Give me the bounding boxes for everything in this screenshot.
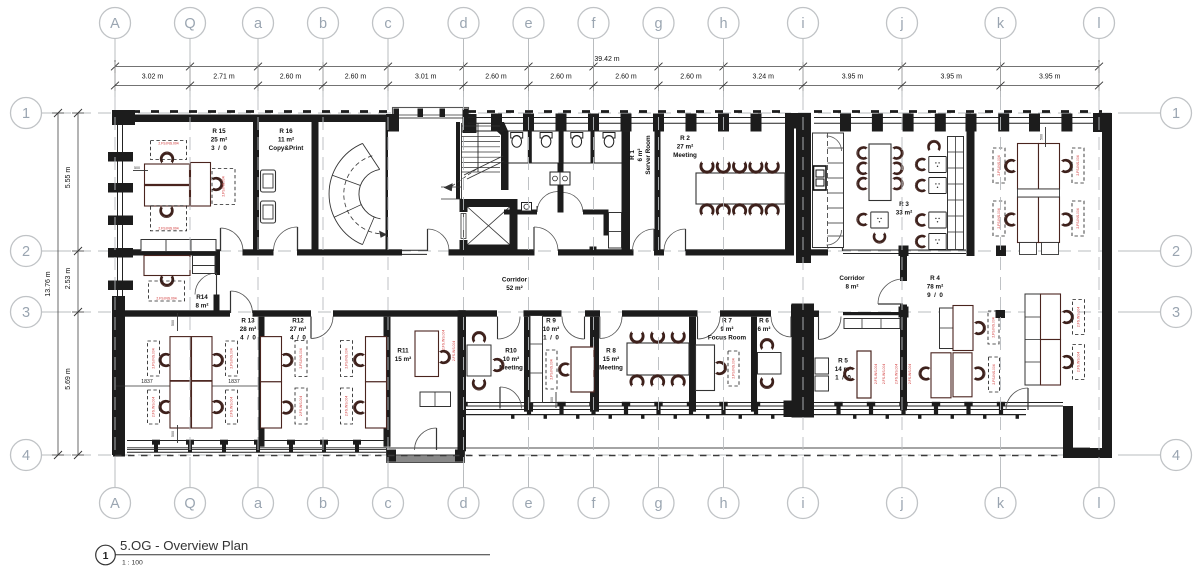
svg-text:R 2: R 2 — [680, 135, 690, 142]
svg-text:2.FS.INS.004: 2.FS.INS.004 — [442, 330, 446, 350]
svg-text:k: k — [997, 16, 1005, 32]
svg-text:R 9: R 9 — [546, 318, 556, 325]
svg-text:R 1: R 1 — [629, 150, 636, 160]
svg-text:Corridor: Corridor — [839, 275, 865, 282]
svg-text:27 m²: 27 m² — [290, 326, 306, 333]
svg-text:g: g — [654, 496, 662, 512]
svg-text:i: i — [801, 496, 804, 512]
svg-text:2.FS.INS.004: 2.FS.INS.004 — [158, 226, 178, 230]
svg-text:2.FS.INS.004: 2.FS.INS.004 — [1077, 352, 1081, 372]
svg-text:3.95 m: 3.95 m — [941, 74, 963, 81]
svg-text:2.FS.INS.004: 2.FS.INS.004 — [345, 348, 349, 368]
svg-text:2.FS.INS.004: 2.FS.INS.004 — [158, 142, 178, 146]
svg-text:R11: R11 — [397, 348, 409, 355]
svg-text:e: e — [524, 496, 532, 512]
svg-text:13.76 m: 13.76 m — [45, 271, 52, 296]
svg-text:500: 500 — [171, 320, 175, 326]
svg-text:6 m²: 6 m² — [758, 326, 771, 333]
svg-text:2.FS.INS.004: 2.FS.INS.004 — [895, 364, 899, 384]
svg-text:2.FS.INS.004: 2.FS.INS.004 — [222, 176, 226, 196]
svg-text:5.OG - Overview Plan: 5.OG - Overview Plan — [120, 538, 248, 553]
svg-text:6 m²: 6 m² — [637, 149, 644, 162]
svg-text:R14: R14 — [196, 294, 208, 301]
svg-text:2.60 m: 2.60 m — [280, 74, 302, 81]
svg-text:1 / 0: 1 / 0 — [543, 335, 559, 342]
svg-text:2.FS.INS.004: 2.FS.INS.004 — [1076, 208, 1080, 228]
svg-text:R 15: R 15 — [212, 128, 226, 135]
svg-text:3.24 m: 3.24 m — [753, 74, 775, 81]
svg-text:2.53 m: 2.53 m — [65, 268, 72, 290]
svg-text:2: 2 — [22, 244, 30, 260]
svg-text:3.01 m: 3.01 m — [415, 74, 437, 81]
svg-text:j: j — [899, 16, 903, 32]
svg-text:1: 1 — [22, 106, 30, 122]
svg-text:2.FS.INS.004: 2.FS.INS.004 — [299, 396, 303, 416]
svg-text:27 m²: 27 m² — [677, 144, 693, 151]
svg-text:2.FS.INS.004: 2.FS.INS.004 — [156, 297, 176, 301]
svg-text:R 3: R 3 — [899, 201, 909, 208]
svg-text:2.60 m: 2.60 m — [485, 74, 507, 81]
svg-text:j: j — [899, 496, 903, 512]
svg-text:8 m²: 8 m² — [846, 284, 859, 291]
svg-text:78 m²: 78 m² — [927, 284, 943, 291]
svg-text:g: g — [654, 16, 662, 32]
svg-text:2.FS.INS.004: 2.FS.INS.004 — [732, 358, 736, 378]
svg-text:2.60 m: 2.60 m — [345, 74, 367, 81]
svg-text:3: 3 — [22, 305, 30, 321]
svg-text:1837: 1837 — [228, 379, 240, 385]
svg-text:Meeting: Meeting — [599, 365, 623, 372]
svg-text:2.60 m: 2.60 m — [615, 74, 637, 81]
svg-text:2.FS.INS.004: 2.FS.INS.004 — [452, 341, 456, 361]
svg-text:4: 4 — [22, 448, 30, 464]
svg-text:3: 3 — [1172, 305, 1180, 321]
svg-text:3.02 m: 3.02 m — [142, 74, 164, 81]
svg-text:R 16: R 16 — [279, 128, 293, 135]
svg-text:h: h — [719, 16, 727, 32]
svg-text:10 m²: 10 m² — [543, 326, 559, 333]
svg-text:2.FS.INS.004: 2.FS.INS.004 — [882, 364, 886, 384]
svg-text:R 4: R 4 — [930, 275, 940, 282]
svg-text:d: d — [459, 16, 467, 32]
svg-text:a: a — [254, 16, 263, 32]
svg-text:2.FS.INS.004: 2.FS.INS.004 — [550, 359, 554, 379]
svg-text:Q: Q — [184, 496, 195, 512]
svg-text:9 / 0: 9 / 0 — [927, 292, 943, 299]
svg-text:2.FS.INS.004: 2.FS.INS.004 — [992, 364, 996, 384]
svg-text:39.42 m: 39.42 m — [594, 56, 619, 63]
svg-text:28 m²: 28 m² — [240, 326, 256, 333]
svg-text:Server Room: Server Room — [645, 135, 652, 175]
svg-text:i: i — [801, 16, 804, 32]
svg-text:2.FS.INS.004: 2.FS.INS.004 — [299, 348, 303, 368]
svg-text:500: 500 — [171, 431, 175, 437]
svg-text:2.FS.INS.004: 2.FS.INS.004 — [230, 397, 234, 417]
svg-text:2.FS.INS.004: 2.FS.INS.004 — [874, 364, 878, 384]
svg-text:A: A — [110, 16, 120, 32]
svg-text:l: l — [1097, 16, 1100, 32]
svg-text:500: 500 — [1040, 134, 1044, 140]
svg-text:3.95 m: 3.95 m — [842, 74, 864, 81]
svg-text:1: 1 — [103, 550, 109, 562]
svg-text:500: 500 — [550, 397, 554, 403]
svg-text:8 m²: 8 m² — [196, 303, 209, 310]
svg-text:2.FS.INS.004: 2.FS.INS.004 — [152, 397, 156, 417]
svg-text:b: b — [319, 16, 327, 32]
svg-text:3.95 m: 3.95 m — [1039, 74, 1061, 81]
svg-text:52 m²: 52 m² — [506, 285, 522, 292]
svg-text:2.FS.INS.004: 2.FS.INS.004 — [345, 396, 349, 416]
svg-text:A: A — [110, 496, 120, 512]
svg-text:1 : 100: 1 : 100 — [122, 560, 143, 567]
svg-text:2.FS.INS.004: 2.FS.INS.004 — [1076, 155, 1080, 175]
svg-text:10 m²: 10 m² — [503, 356, 519, 363]
svg-text:Focus Room: Focus Room — [708, 335, 747, 342]
svg-text:2.60 m: 2.60 m — [680, 74, 702, 81]
svg-text:k: k — [997, 496, 1005, 512]
svg-text:33 m²: 33 m² — [896, 210, 912, 217]
svg-text:9 m²: 9 m² — [721, 326, 734, 333]
svg-text:2.FS.INS.004: 2.FS.INS.004 — [1077, 307, 1081, 327]
svg-text:R 8: R 8 — [606, 348, 616, 355]
svg-text:2.FS.INS.004: 2.FS.INS.004 — [152, 348, 156, 368]
svg-text:5.69 m: 5.69 m — [65, 368, 72, 390]
svg-text:3 / 0: 3 / 0 — [211, 145, 227, 152]
svg-text:Corridor: Corridor — [502, 276, 528, 283]
svg-text:2.FS.INS.004: 2.FS.INS.004 — [230, 348, 234, 368]
svg-text:R 5: R 5 — [838, 358, 848, 365]
svg-text:a: a — [254, 496, 263, 512]
svg-text:500: 500 — [134, 166, 140, 170]
svg-text:2.FS.INS.004: 2.FS.INS.004 — [992, 317, 996, 337]
svg-text:R 13: R 13 — [241, 318, 255, 325]
svg-text:Meeting: Meeting — [673, 152, 697, 159]
svg-text:R10: R10 — [505, 348, 517, 355]
svg-text:15 m²: 15 m² — [603, 356, 619, 363]
svg-text:11 m²: 11 m² — [278, 137, 294, 144]
svg-text:2.FS.INS.004: 2.FS.INS.004 — [908, 364, 912, 384]
svg-text:2.60 m: 2.60 m — [550, 74, 572, 81]
svg-text:R12: R12 — [292, 318, 304, 325]
svg-text:b: b — [319, 496, 327, 512]
svg-text:c: c — [384, 496, 391, 512]
svg-text:e: e — [524, 16, 532, 32]
svg-text:5.55 m: 5.55 m — [65, 167, 72, 189]
svg-text:15 m²: 15 m² — [395, 356, 411, 363]
svg-text:1: 1 — [1172, 106, 1180, 122]
svg-text:h: h — [719, 496, 727, 512]
svg-text:d: d — [459, 496, 467, 512]
svg-text:1837: 1837 — [141, 379, 153, 385]
svg-text:Q: Q — [184, 16, 195, 32]
svg-text:4 / 0: 4 / 0 — [240, 335, 256, 342]
svg-text:2.71 m: 2.71 m — [213, 74, 235, 81]
svg-text:2: 2 — [1172, 244, 1180, 260]
svg-text:25 m²: 25 m² — [211, 137, 227, 144]
svg-text:4: 4 — [1172, 448, 1180, 464]
svg-text:c: c — [384, 16, 391, 32]
svg-text:R 6: R 6 — [759, 318, 769, 325]
svg-text:l: l — [1097, 496, 1100, 512]
svg-text:Copy&Print: Copy&Print — [269, 145, 305, 152]
